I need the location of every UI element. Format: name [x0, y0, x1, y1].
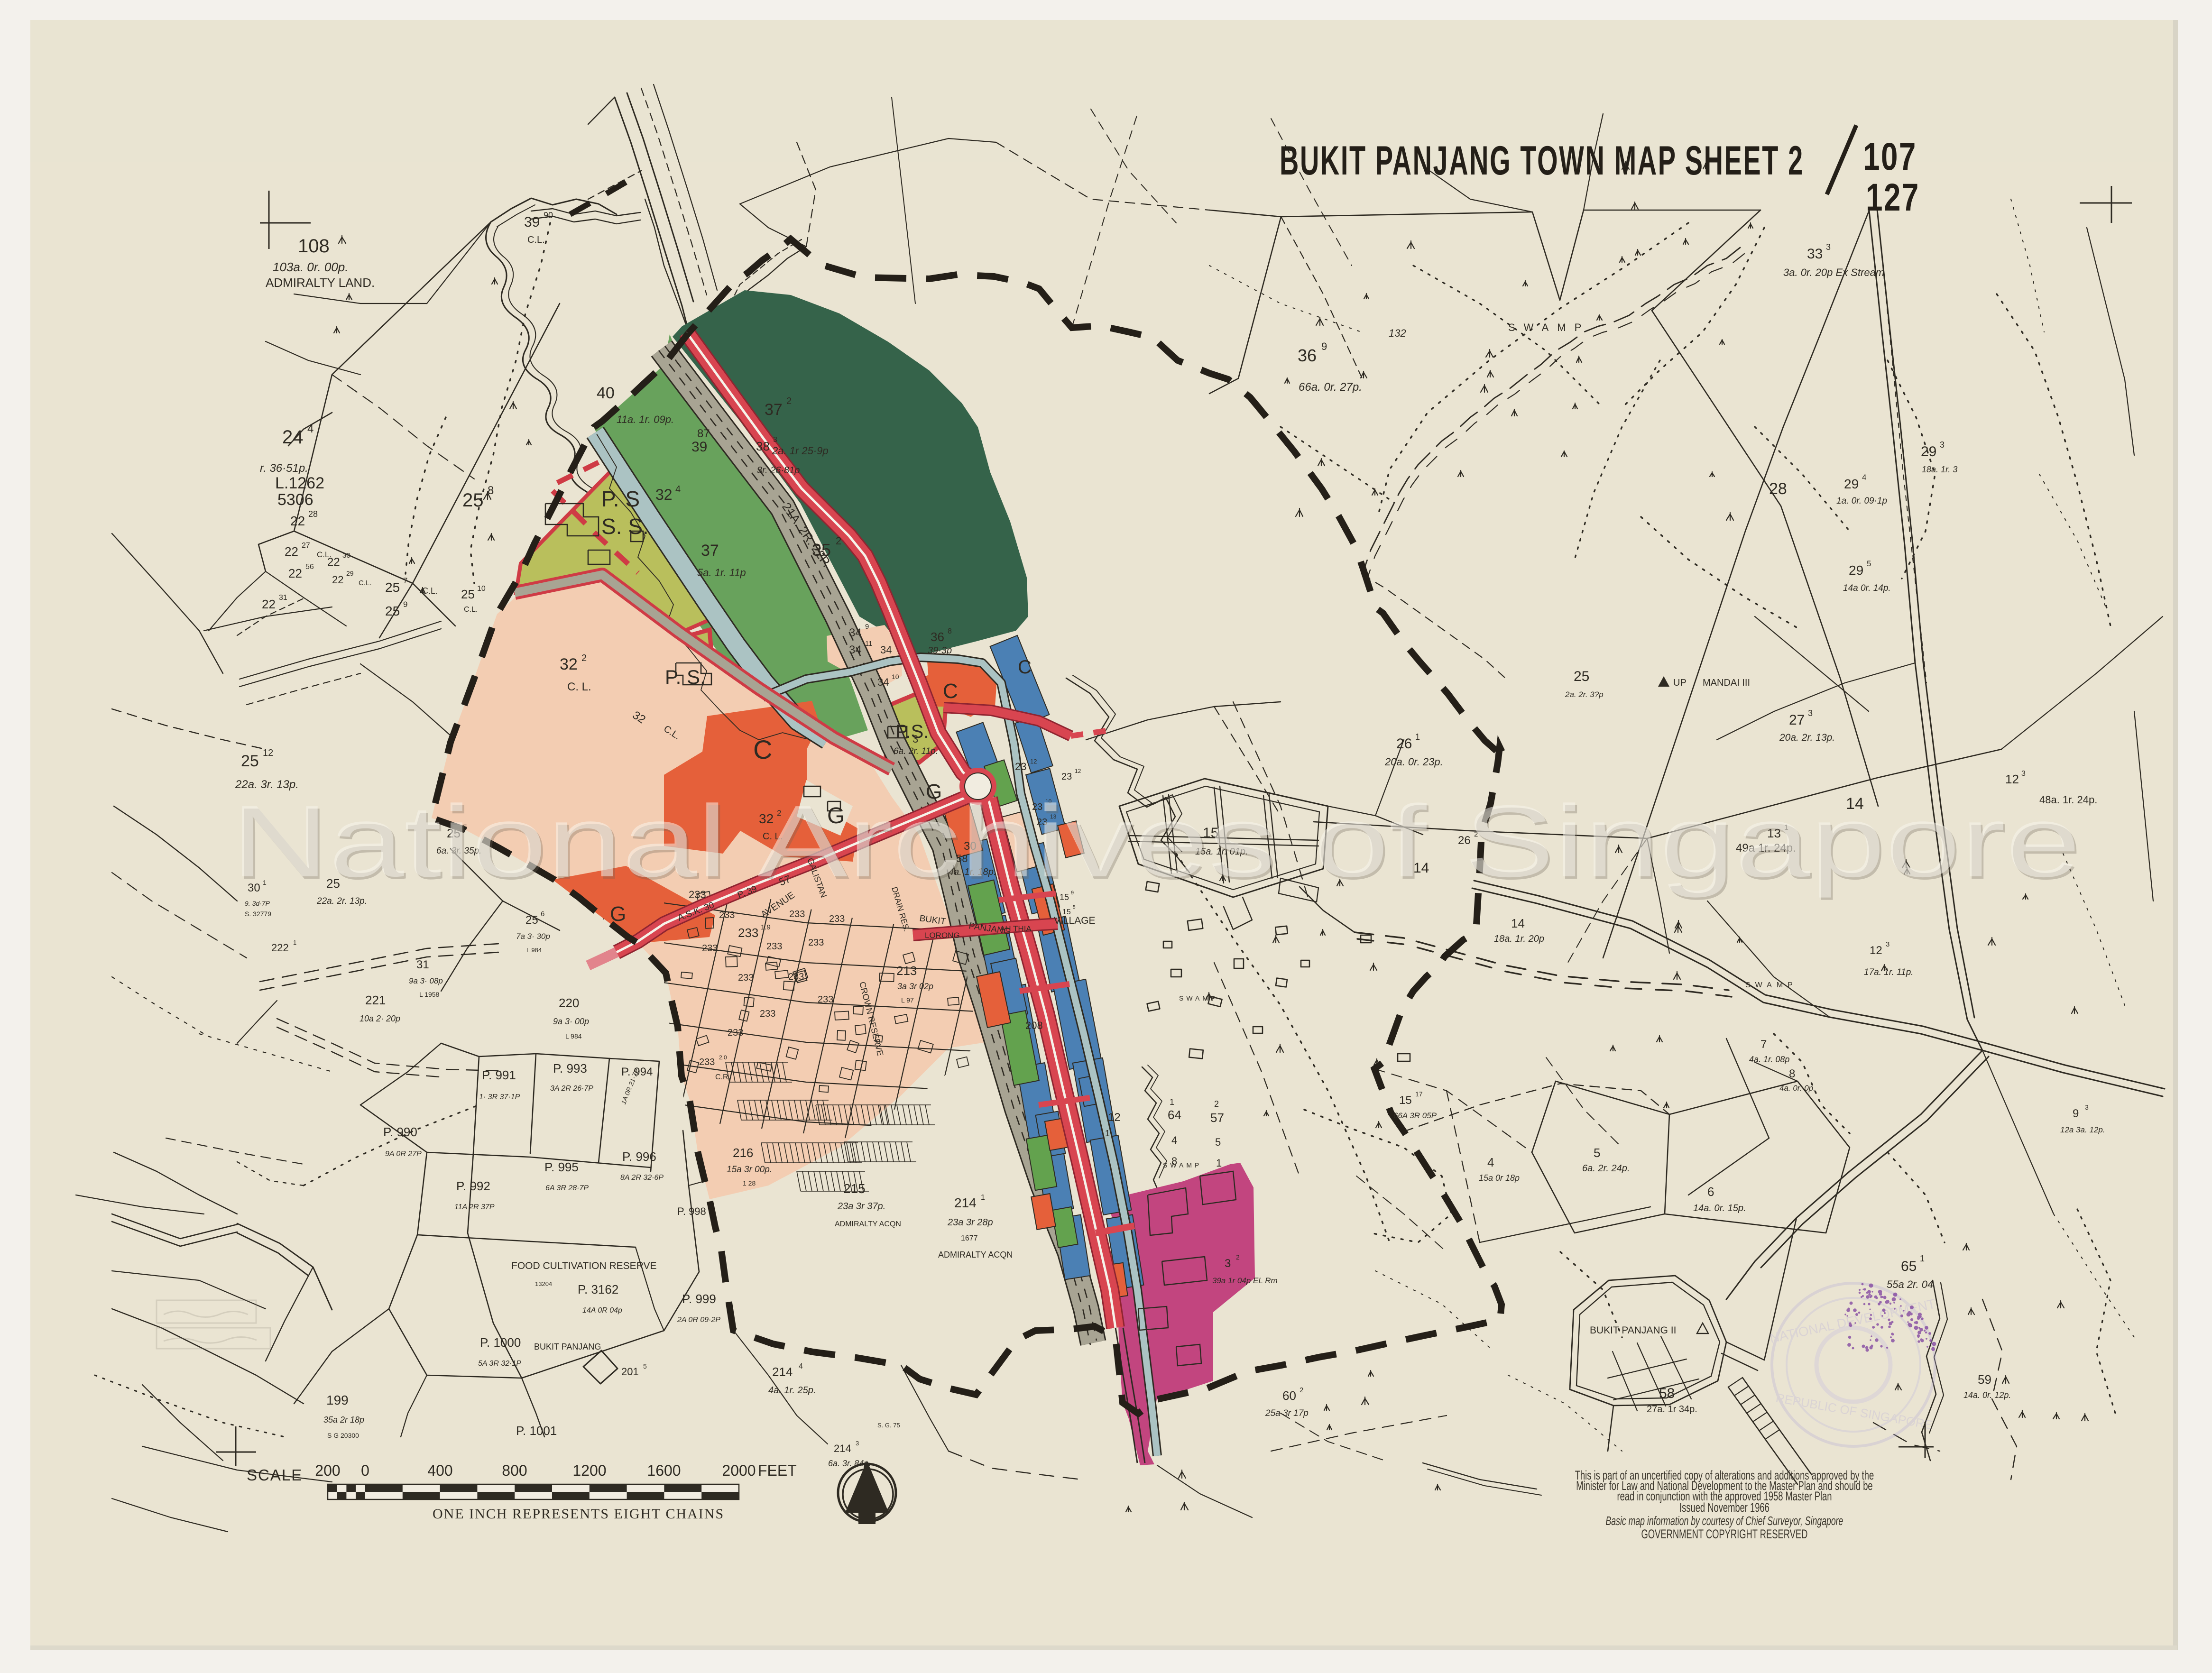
svg-text:13204: 13204 — [535, 1280, 552, 1287]
svg-text:2.0: 2.0 — [719, 1054, 727, 1061]
svg-text:233: 233 — [788, 972, 804, 982]
svg-text:9. 3d·7P: 9. 3d·7P — [245, 900, 270, 907]
svg-text:1· 3R 37·1P: 1· 3R 37·1P — [479, 1093, 520, 1101]
svg-text:P. 992: P. 992 — [456, 1179, 490, 1193]
svg-text:C.L.: C.L. — [464, 606, 478, 614]
svg-text:34: 34 — [849, 643, 862, 656]
svg-text:7: 7 — [403, 576, 407, 585]
svg-text:25: 25 — [525, 914, 538, 927]
svg-text:1: 1 — [1216, 1157, 1222, 1169]
svg-text:30: 30 — [342, 552, 350, 560]
svg-text:24: 24 — [282, 427, 304, 448]
svg-text:3: 3 — [1826, 242, 1831, 252]
svg-text:233: 233 — [789, 909, 805, 919]
svg-text:1600: 1600 — [647, 1462, 681, 1479]
svg-text:132: 132 — [1389, 327, 1406, 339]
svg-text:P. 999: P. 999 — [682, 1292, 716, 1306]
svg-text:3A 2R 26·7P: 3A 2R 26·7P — [550, 1085, 593, 1093]
svg-text:2: 2 — [786, 396, 792, 406]
svg-text:MANDAI III: MANDAI III — [1703, 678, 1750, 688]
svg-text:G: G — [610, 902, 626, 926]
svg-text:59: 59 — [1978, 1372, 1991, 1387]
svg-text:39: 39 — [691, 439, 707, 455]
svg-text:3: 3 — [1886, 940, 1889, 948]
svg-text:37: 37 — [765, 401, 783, 419]
svg-text:5: 5 — [643, 1362, 647, 1370]
svg-text:C: C — [1018, 657, 1032, 678]
svg-text:127: 127 — [1866, 175, 1920, 219]
svg-text:12a 3a. 12p.: 12a 3a. 12p. — [2060, 1125, 2105, 1134]
svg-text:8A 2R 32·6P: 8A 2R 32·6P — [620, 1174, 664, 1182]
svg-text:S. G. 75: S. G. 75 — [877, 1422, 900, 1429]
svg-text:66A 3R 05P: 66A 3R 05P — [1393, 1111, 1437, 1120]
svg-text:28: 28 — [308, 509, 318, 519]
svg-text:214: 214 — [772, 1365, 793, 1379]
svg-text:10a 2· 20p: 10a 2· 20p — [359, 1014, 400, 1023]
svg-text:3: 3 — [1225, 1257, 1231, 1270]
svg-text:National Archives of Singapore: National Archives of Singapore — [231, 784, 2081, 898]
svg-text:208: 208 — [1025, 1020, 1043, 1031]
svg-text:1200: 1200 — [572, 1462, 606, 1479]
svg-text:800: 800 — [502, 1462, 527, 1479]
svg-text:Issued November 1966: Issued November 1966 — [1679, 1500, 1770, 1514]
svg-text:6a. 2r. 24p.: 6a. 2r. 24p. — [1582, 1163, 1630, 1174]
svg-text:C. L.: C. L. — [567, 680, 591, 693]
svg-text:233: 233 — [829, 914, 845, 924]
svg-text:39·3p: 39·3p — [928, 645, 952, 656]
svg-text:29: 29 — [1849, 563, 1863, 578]
svg-text:103a. 0r. 00p.: 103a. 0r. 00p. — [273, 260, 349, 274]
svg-text:3: 3 — [1940, 440, 1945, 450]
svg-text:2: 2 — [1236, 1253, 1240, 1261]
svg-text:38: 38 — [756, 439, 770, 453]
svg-text:233: 233 — [766, 941, 782, 952]
svg-text:29: 29 — [1844, 477, 1859, 491]
svg-text:34: 34 — [880, 644, 892, 656]
svg-text:22: 22 — [327, 556, 340, 569]
svg-text:233: 233 — [699, 1057, 715, 1067]
svg-text:22: 22 — [262, 597, 276, 611]
svg-text:9: 9 — [2073, 1107, 2079, 1120]
svg-text:FOOD CULTIVATION RESERVE: FOOD CULTIVATION RESERVE — [511, 1260, 657, 1271]
svg-text:214: 214 — [834, 1443, 851, 1454]
svg-text:5306: 5306 — [277, 491, 313, 509]
svg-text:12: 12 — [1108, 1111, 1121, 1124]
svg-text:64: 64 — [1168, 1108, 1181, 1122]
svg-text:20a. 2r. 13p.: 20a. 2r. 13p. — [1779, 732, 1835, 743]
svg-text:65: 65 — [1901, 1259, 1917, 1274]
svg-text:8: 8 — [1789, 1067, 1795, 1080]
svg-text:25: 25 — [385, 604, 400, 618]
svg-text:P. 995: P. 995 — [544, 1160, 579, 1174]
svg-text:VILLAGE: VILLAGE — [1054, 915, 1096, 926]
svg-text:233: 233 — [818, 994, 833, 1005]
svg-text:400: 400 — [427, 1462, 452, 1479]
svg-text:L.1262: L.1262 — [275, 474, 324, 492]
svg-text:3r. 26·81p: 3r. 26·81p — [757, 465, 800, 476]
svg-text:214: 214 — [954, 1195, 977, 1210]
svg-text:25: 25 — [462, 490, 484, 511]
svg-text:C.L.: C.L. — [527, 235, 545, 245]
svg-text:15a 3r 00p.: 15a 3r 00p. — [727, 1165, 772, 1175]
svg-text:23a 3r 28p: 23a 3r 28p — [947, 1217, 993, 1228]
svg-text:14A 0R 04p: 14A 0R 04p — [582, 1306, 622, 1314]
svg-text:23a 3r 37p.: 23a 3r 37p. — [837, 1201, 885, 1212]
svg-text:55a 2r. 04: 55a 2r. 04 — [1887, 1278, 1933, 1290]
svg-text:9: 9 — [403, 600, 407, 609]
svg-text:9: 9 — [865, 623, 869, 631]
svg-text:200: 200 — [315, 1462, 340, 1479]
svg-text:SWAMP: SWAMP — [1745, 981, 1797, 989]
svg-text:2: 2 — [1300, 1386, 1303, 1394]
svg-text:UP: UP — [1673, 678, 1687, 688]
svg-text:r. 36·51p.: r. 36·51p. — [260, 462, 308, 475]
svg-text:ONE INCH REPRESENTS EIGHT CHAI: ONE INCH REPRESENTS EIGHT CHAINS — [433, 1506, 724, 1522]
svg-text:P. 998: P. 998 — [677, 1205, 706, 1217]
svg-text:233: 233 — [808, 938, 824, 948]
svg-text:6a. 2r. 11p.: 6a. 2r. 11p. — [894, 746, 938, 756]
svg-text:C.L.: C.L. — [422, 586, 438, 596]
svg-text:60: 60 — [1282, 1388, 1296, 1403]
svg-text:L 1958: L 1958 — [419, 991, 440, 998]
svg-text:8: 8 — [948, 627, 952, 635]
svg-text:4: 4 — [1487, 1155, 1494, 1169]
svg-text:SWAMP: SWAMP — [1163, 1161, 1202, 1169]
svg-text:5: 5 — [1215, 1136, 1221, 1148]
svg-text:BUKIT PANJANG: BUKIT PANJANG — [534, 1342, 601, 1351]
svg-text:17: 17 — [1415, 1090, 1423, 1098]
svg-text:18a. 1r. 20p: 18a. 1r. 20p — [1494, 934, 1544, 944]
svg-text:1: 1 — [1415, 732, 1420, 742]
svg-text:58: 58 — [1659, 1386, 1675, 1401]
svg-text:GOVERNMENT COPYRIGHT RESERVED: GOVERNMENT COPYRIGHT RESERVED — [1641, 1526, 1808, 1541]
svg-text:27a. 1r 34p.: 27a. 1r 34p. — [1647, 1404, 1697, 1415]
svg-text:23: 23 — [1015, 761, 1026, 772]
svg-text:14a. 0r. 12p.: 14a. 0r. 12p. — [1963, 1390, 2011, 1400]
svg-text:40: 40 — [597, 384, 615, 402]
svg-text:Basic map information by court: Basic map information by courtesy of Chi… — [1606, 1514, 1843, 1528]
svg-text:SCALE: SCALE — [247, 1466, 303, 1484]
svg-text:11A 2R 37P: 11A 2R 37P — [454, 1203, 495, 1211]
svg-text:233: 233 — [728, 1028, 743, 1038]
svg-text:233: 233 — [738, 926, 758, 940]
svg-text:39a 1r 04p EL Rm: 39a 1r 04p EL Rm — [1212, 1276, 1278, 1285]
svg-text:3: 3 — [773, 436, 777, 444]
svg-text:199: 199 — [326, 1393, 349, 1407]
svg-text:34: 34 — [877, 676, 889, 688]
svg-text:S. 32779: S. 32779 — [245, 910, 271, 918]
svg-text:23: 23 — [1061, 772, 1072, 782]
svg-text:C.R.: C.R. — [715, 1073, 730, 1081]
svg-text:LORONG: LORONG — [925, 931, 960, 940]
svg-text:1 28: 1 28 — [743, 1179, 756, 1187]
svg-text:22: 22 — [290, 514, 305, 528]
svg-text:1.9: 1.9 — [761, 923, 771, 931]
svg-text:10: 10 — [477, 585, 486, 593]
svg-text:25: 25 — [241, 752, 259, 770]
svg-text:9A 0R 27P: 9A 0R 27P — [385, 1150, 422, 1158]
svg-text:2a. 1r 25·9p: 2a. 1r 25·9p — [772, 445, 829, 457]
svg-text:25: 25 — [461, 587, 475, 601]
svg-text:SWAMP: SWAMP — [1179, 994, 1218, 1002]
svg-text:2000: 2000 — [722, 1462, 756, 1479]
svg-text:2A 0R 09·2P: 2A 0R 09·2P — [677, 1316, 720, 1324]
svg-text:ADMIRALTY ACQN: ADMIRALTY ACQN — [835, 1220, 901, 1228]
svg-text:3: 3 — [912, 733, 918, 745]
svg-text:25: 25 — [385, 580, 400, 595]
svg-text:4: 4 — [1171, 1134, 1177, 1146]
svg-text:14: 14 — [1511, 916, 1525, 930]
svg-text:6: 6 — [1707, 1185, 1714, 1199]
svg-text:31: 31 — [416, 958, 429, 971]
svg-text:4a. 0r. 0p.: 4a. 0r. 0p. — [1779, 1084, 1816, 1093]
svg-text:P. 991: P. 991 — [482, 1068, 516, 1082]
svg-text:37: 37 — [701, 542, 719, 560]
svg-text:32: 32 — [560, 655, 578, 673]
svg-text:9a 3· 08p: 9a 3· 08p — [409, 976, 443, 985]
svg-text:222: 222 — [271, 942, 289, 954]
svg-text:5A 3R 32·1P: 5A 3R 32·1P — [478, 1360, 521, 1368]
svg-text:221: 221 — [365, 993, 386, 1007]
svg-text:25a 3r 17p: 25a 3r 17p — [1265, 1408, 1309, 1418]
svg-text:L 97: L 97 — [901, 996, 914, 1004]
svg-text:14a. 0r. 15p.: 14a. 0r. 15p. — [1693, 1203, 1746, 1213]
svg-text:7: 7 — [1760, 1038, 1767, 1051]
svg-text:14a 0r. 14p.: 14a 0r. 14p. — [1843, 583, 1891, 593]
svg-text:39: 39 — [524, 214, 540, 230]
svg-text:12: 12 — [1870, 944, 1882, 957]
svg-text:11: 11 — [865, 640, 873, 648]
svg-text:4: 4 — [675, 484, 681, 495]
svg-text:9: 9 — [1321, 340, 1327, 352]
svg-text:ADMIRALTY ACQN: ADMIRALTY ACQN — [938, 1250, 1013, 1259]
svg-text:C: C — [753, 735, 772, 764]
svg-text:3a. 0r. 20p Ex Stream: 3a. 0r. 20p Ex Stream — [1783, 267, 1884, 278]
svg-text:18a. 1r. 3: 18a. 1r. 3 — [1922, 465, 1957, 474]
svg-text:P. 996: P. 996 — [622, 1149, 656, 1164]
svg-text:36: 36 — [931, 630, 944, 644]
svg-text:22: 22 — [285, 544, 298, 559]
svg-text:SWAMP: SWAMP — [1508, 322, 1590, 333]
svg-text:BUKIT PANJANG TOWN MAP SHEET 2: BUKIT PANJANG TOWN MAP SHEET 2 — [1280, 138, 1804, 184]
svg-text:56: 56 — [305, 563, 314, 571]
svg-text:5: 5 — [1594, 1146, 1600, 1160]
svg-text:S. S.: S. S. — [601, 514, 649, 539]
svg-text:29: 29 — [346, 570, 354, 577]
svg-text:22: 22 — [332, 574, 343, 586]
svg-text:4: 4 — [799, 1362, 803, 1370]
svg-text:FEET: FEET — [758, 1462, 797, 1479]
svg-text:P. 990: P. 990 — [383, 1125, 417, 1139]
svg-text:20a. 0r. 23p.: 20a. 0r. 23p. — [1384, 756, 1443, 768]
svg-text:29: 29 — [1921, 444, 1936, 460]
svg-text:28: 28 — [1769, 480, 1787, 498]
svg-text:P. 1000: P. 1000 — [480, 1335, 521, 1350]
svg-text:233: 233 — [719, 910, 735, 920]
svg-text:10: 10 — [892, 673, 899, 680]
svg-text:P. 1001: P. 1001 — [516, 1424, 557, 1438]
svg-text:33: 33 — [1807, 246, 1823, 262]
svg-text:27: 27 — [1789, 712, 1805, 728]
svg-text:L 984: L 984 — [526, 947, 542, 954]
svg-text:3: 3 — [2085, 1103, 2089, 1111]
svg-text:5a. 1r. 11p: 5a. 1r. 11p — [697, 567, 746, 579]
svg-text:26: 26 — [1396, 736, 1412, 752]
svg-text:15: 15 — [1399, 1094, 1412, 1107]
svg-text:36: 36 — [1298, 346, 1317, 365]
svg-text:220: 220 — [559, 996, 579, 1010]
svg-text:P. 3162: P. 3162 — [578, 1282, 618, 1296]
svg-text:87: 87 — [697, 427, 710, 440]
svg-text:4: 4 — [1862, 473, 1866, 482]
svg-text:P. S.: P. S. — [665, 666, 706, 688]
svg-text:9a 3· 00p: 9a 3· 00p — [553, 1017, 589, 1026]
svg-text:11a. 1r. 09p.: 11a. 1r. 09p. — [617, 414, 674, 425]
svg-text:5: 5 — [1867, 559, 1871, 568]
svg-text:15a 0r 18p: 15a 0r 18p — [1479, 1173, 1520, 1183]
svg-text:57: 57 — [1210, 1111, 1224, 1125]
svg-text:3a 3r 02p: 3a 3r 02p — [897, 982, 933, 991]
svg-text:215: 215 — [843, 1181, 866, 1196]
svg-text:P. S: P. S — [601, 487, 640, 511]
svg-text:BUKIT PANJANG II: BUKIT PANJANG II — [1590, 1325, 1676, 1336]
svg-text:66a. 0r. 27p.: 66a. 0r. 27p. — [1299, 381, 1362, 394]
svg-text:6: 6 — [541, 910, 544, 918]
svg-text:233: 233 — [738, 973, 754, 983]
svg-text:2: 2 — [581, 653, 587, 663]
svg-text:4: 4 — [307, 423, 313, 435]
svg-text:35a 2r 18p: 35a 2r 18p — [323, 1415, 364, 1425]
svg-text:12: 12 — [1030, 758, 1037, 765]
svg-text:2a. 2r. 3?p: 2a. 2r. 3?p — [1565, 690, 1604, 699]
svg-text:1677: 1677 — [961, 1234, 978, 1242]
svg-text:6A 3R 28·7P: 6A 3R 28·7P — [545, 1184, 589, 1192]
svg-text:1: 1 — [981, 1194, 985, 1202]
svg-text:AH THIA: AH THIA — [1000, 924, 1032, 933]
svg-text:213: 213 — [896, 964, 917, 978]
svg-text:S G 20300: S G 20300 — [327, 1432, 359, 1439]
svg-text:P. 993: P. 993 — [553, 1061, 587, 1075]
svg-text:201: 201 — [621, 1366, 639, 1378]
svg-text:3: 3 — [1808, 708, 1813, 718]
svg-text:1: 1 — [1170, 1097, 1174, 1107]
svg-text:4a. 1r. 25p.: 4a. 1r. 25p. — [768, 1385, 816, 1396]
svg-text:3: 3 — [2021, 770, 2026, 778]
svg-text:2: 2 — [1214, 1099, 1219, 1109]
svg-text:1: 1 — [1920, 1254, 1925, 1263]
svg-text:1a. 0r. 09·1p: 1a. 0r. 09·1p — [1836, 496, 1887, 506]
svg-text:22: 22 — [288, 566, 302, 580]
svg-text:34: 34 — [849, 626, 862, 639]
svg-text:12: 12 — [1075, 768, 1081, 774]
svg-text:25: 25 — [1574, 669, 1589, 684]
svg-text:31: 31 — [279, 594, 287, 602]
svg-text:32: 32 — [655, 486, 673, 503]
svg-text:12: 12 — [263, 748, 273, 758]
svg-text:216: 216 — [733, 1146, 753, 1160]
svg-text:90: 90 — [544, 211, 553, 220]
svg-text:7a 3· 30p: 7a 3· 30p — [516, 932, 550, 941]
svg-text:8: 8 — [488, 484, 494, 497]
svg-text:27: 27 — [302, 542, 310, 550]
svg-text:0: 0 — [361, 1462, 369, 1479]
svg-text:ADMIRALTY LAND.: ADMIRALTY LAND. — [266, 276, 375, 290]
svg-text:108: 108 — [298, 236, 330, 257]
svg-text:2: 2 — [836, 535, 841, 547]
svg-text:1: 1 — [1105, 1129, 1110, 1138]
svg-text:L 984: L 984 — [565, 1032, 582, 1040]
svg-text:17a. 1r. 11p.: 17a. 1r. 11p. — [1864, 967, 1914, 977]
svg-text:233: 233 — [760, 1009, 775, 1019]
svg-text:C: C — [943, 680, 958, 703]
svg-text:233: 233 — [702, 943, 718, 954]
svg-text:4a. 1r. 08p: 4a. 1r. 08p — [1749, 1055, 1789, 1064]
svg-text:107: 107 — [1863, 134, 1917, 178]
svg-text:C.L.: C.L. — [359, 579, 372, 587]
svg-text:3: 3 — [856, 1440, 859, 1447]
svg-text:5: 5 — [1073, 905, 1076, 910]
svg-text:1: 1 — [293, 939, 296, 946]
